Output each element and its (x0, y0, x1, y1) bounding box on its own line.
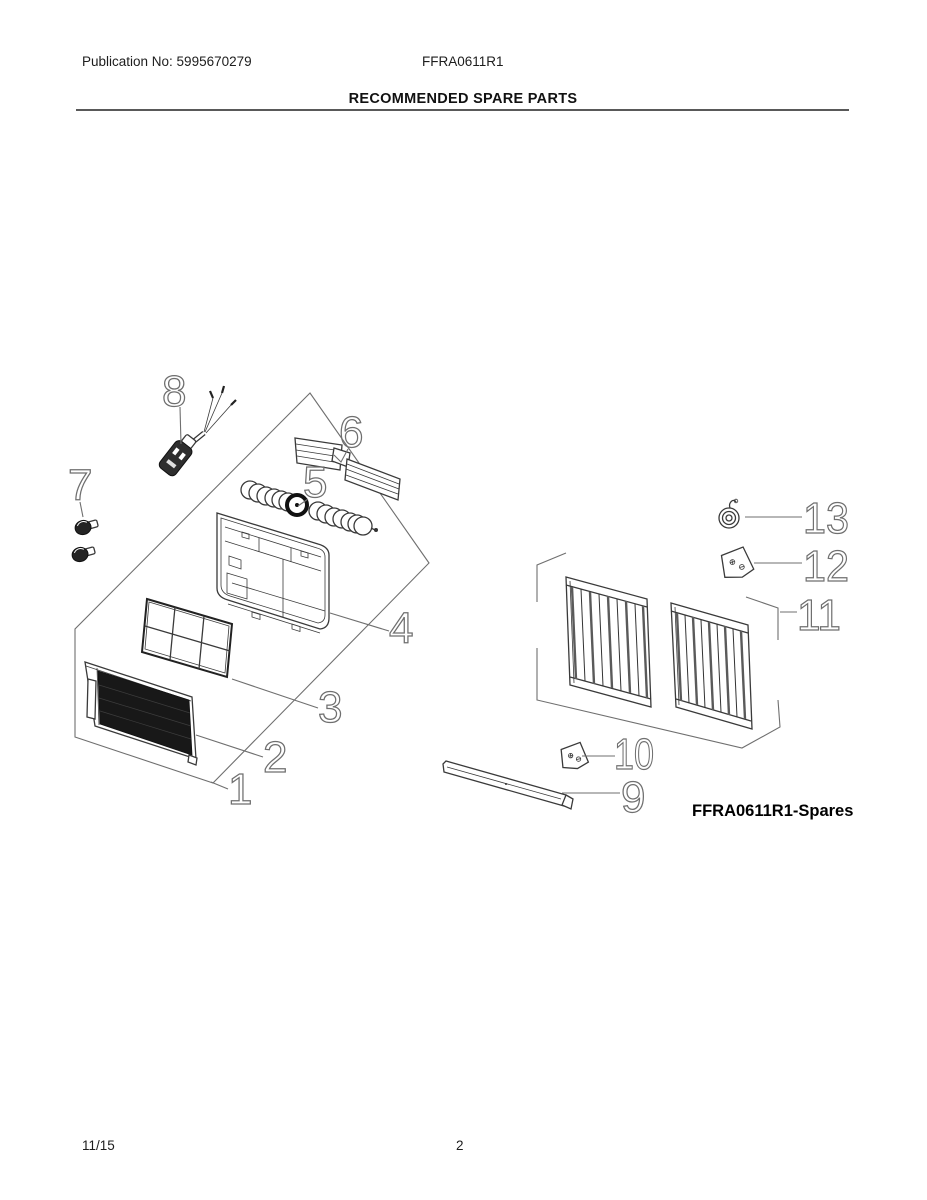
callout-3: 3 (318, 683, 342, 732)
callout-6: 6 (339, 408, 363, 457)
part-control-knobs (71, 517, 100, 563)
part-front-grille (85, 662, 197, 765)
callout-10: 10 (614, 730, 654, 779)
part-curtain-left (566, 577, 651, 707)
publication-number: Publication No: 5995670279 (82, 54, 252, 69)
callout-12: 12 (803, 542, 849, 591)
callout-2: 2 (263, 733, 287, 782)
part-seal-rail (443, 761, 573, 809)
part-hardware-bag-12 (719, 546, 755, 581)
callout-4: 4 (389, 604, 413, 653)
part-air-filter (142, 599, 232, 677)
part-curtain-right (671, 603, 752, 729)
callout-8: 8 (162, 367, 186, 416)
callout-13: 13 (803, 494, 849, 543)
part-drain-coil (719, 499, 739, 528)
part-front-panel (217, 513, 329, 633)
footer-date: 11/15 (82, 1138, 115, 1153)
callout-9: 9 (621, 773, 645, 822)
manual-page: Publication No: 5995670279 FFRA0611R1 RE… (0, 0, 927, 1200)
callout-7: 7 (68, 461, 92, 510)
parts-diagram: Publication No: 5995670279 FFRA0611R1 RE… (0, 0, 927, 1200)
callout-11: 11 (797, 591, 841, 640)
spares-label: FFRA0611R1-Spares (692, 802, 853, 820)
page-title: RECOMMENDED SPARE PARTS (349, 91, 578, 107)
callout-1: 1 (228, 765, 252, 814)
model-number: FFRA0611R1 (422, 54, 504, 69)
callout-5: 5 (303, 458, 327, 507)
footer-page-number: 2 (456, 1138, 464, 1153)
